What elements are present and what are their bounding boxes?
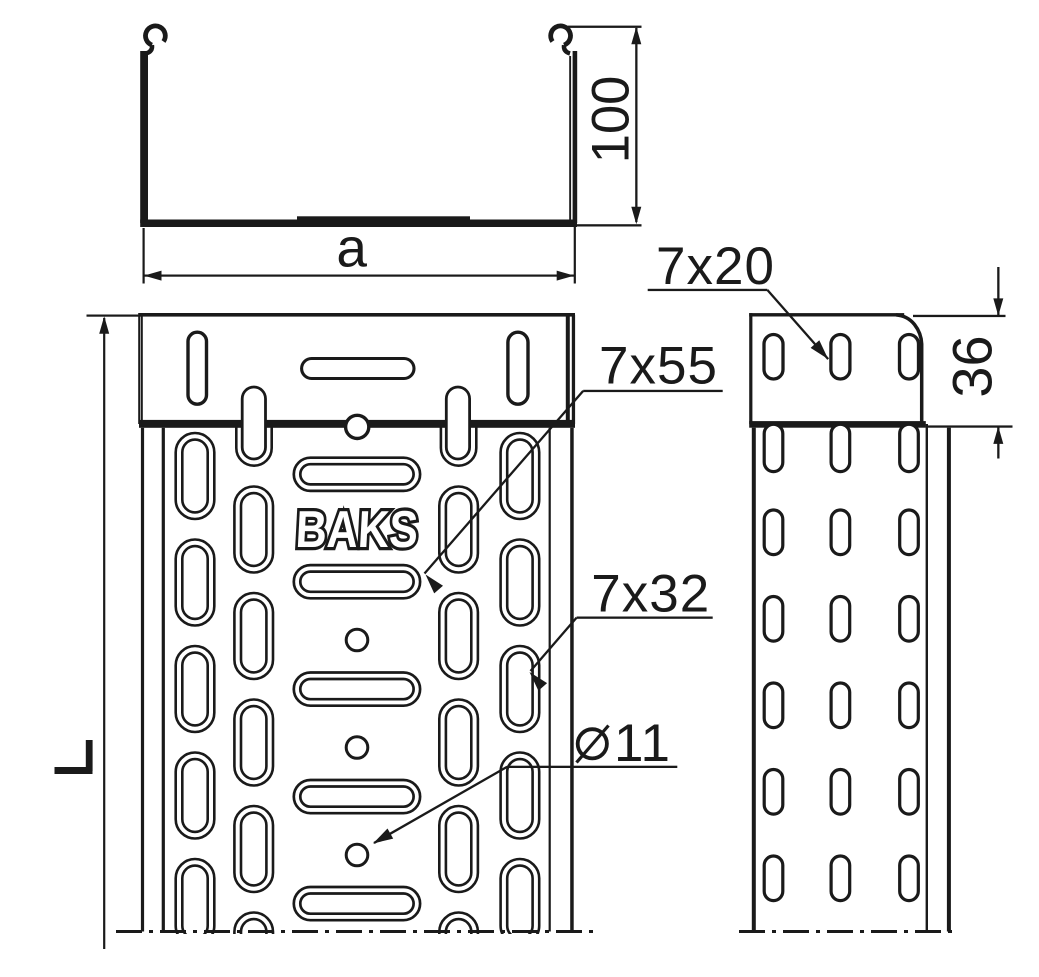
svg-text:7x55: 7x55 [599,337,718,396]
svg-text:7x20: 7x20 [656,237,775,296]
svg-text:a: a [336,217,367,279]
svg-text:100: 100 [582,76,641,164]
svg-text:BAKS: BAKS [294,501,419,559]
svg-text:36: 36 [941,335,1004,397]
svg-text:7x32: 7x32 [591,565,710,624]
svg-text:11: 11 [614,714,671,773]
